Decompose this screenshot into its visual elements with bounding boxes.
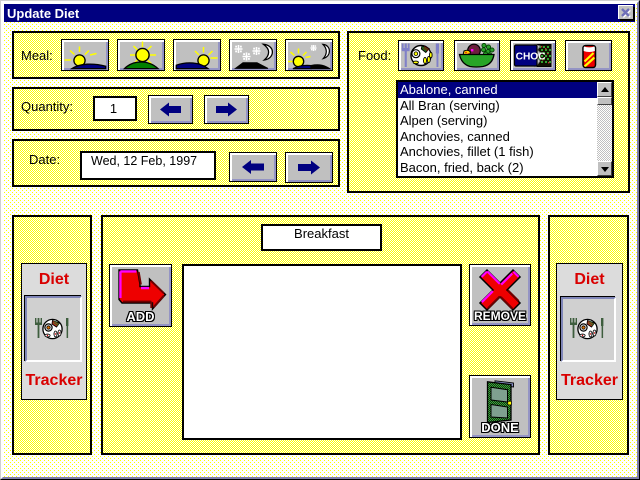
svg-text:CHOC: CHOC xyxy=(516,52,547,63)
